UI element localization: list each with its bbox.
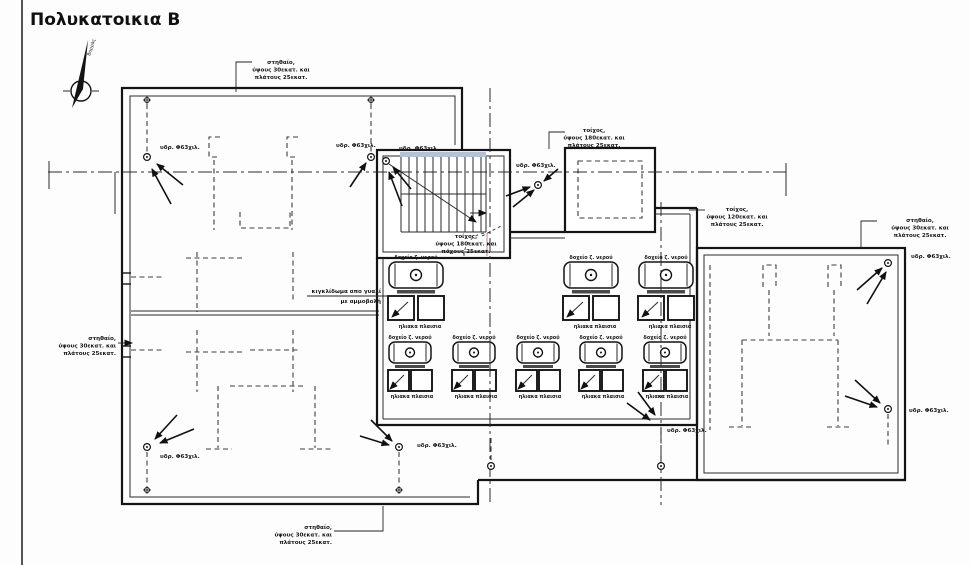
hidden-wall-dashes: [131, 137, 333, 449]
solar-unit: [643, 334, 689, 400]
drain-labels: υδρ. Φ63χιλ. υδρ. Φ63χιλ. υδρ. Φ63χιλ. υ…: [160, 143, 951, 460]
svg-text:πλάτους 25εκατ.: πλάτους 25εκατ.: [279, 539, 332, 546]
svg-text:υδρ. Φ63χιλ.: υδρ. Φ63χιλ.: [911, 254, 951, 260]
solar-unit: [563, 254, 619, 330]
svg-text:υδρ. Φ63χιλ.: υδρ. Φ63χιλ.: [336, 143, 376, 149]
svg-text:πλάτους 25εκατ.: πλάτους 25εκατ.: [894, 232, 947, 239]
svg-text:υδρ. Φ63χιλ.: υδρ. Φ63χιλ.: [160, 454, 200, 460]
svg-text:υδρ. Φ63χιλ.: υδρ. Φ63χιλ.: [667, 428, 707, 434]
svg-text:τοίχος,: τοίχος,: [583, 127, 605, 134]
solar-unit: [388, 254, 444, 330]
svg-text:ύψους 180εκατ. και: ύψους 180εκατ. και: [435, 241, 496, 248]
right-block-outer-parapet: [697, 248, 905, 480]
svg-text:πάχους 25εκατ.: πάχους 25εκατ.: [441, 248, 490, 255]
svg-text:ύψους 30εκατ. και: ύψους 30εκατ. και: [891, 225, 948, 232]
solar-units-row-2: [388, 334, 689, 400]
svg-text:στηθαίο,: στηθαίο,: [267, 59, 295, 66]
drain-pipe-dashes: [147, 104, 399, 486]
wall-180-label: τοίχος, ύψους 180εκατ. και πλάτους 25εκα…: [549, 127, 625, 149]
stair-accent-strip: [400, 152, 486, 157]
drawing-sheet: δοχείο ζ. νερού ηλιακα πλαισια δοχείο ζ.…: [0, 0, 970, 565]
svg-text:υδρ. Φ63χιλ.: υδρ. Φ63χιλ.: [516, 163, 556, 169]
parapet-label-right: στηθαίο, ύψους 30εκατ. και πλάτους 25εκα…: [861, 217, 949, 249]
glass-railing-label: κιγκλίδωμα απο γυαλί με αμμοβολή: [307, 288, 400, 305]
svg-text:με αμμοβολή: με αμμοβολή: [341, 298, 381, 305]
wall-120-label: τοίχος, ύψους 120εκατ. και πλάτους 25εκα…: [689, 206, 768, 228]
svg-text:ύψους 30εκατ. και: ύψους 30εκατ. και: [252, 67, 309, 74]
svg-text:ύψους 30εκατ. και: ύψους 30εκατ. και: [275, 532, 332, 539]
solar-units-row-1: [388, 254, 694, 330]
solar-unit: [516, 334, 562, 400]
svg-text:ύψους 180εκατ. και: ύψους 180εκατ. και: [563, 135, 624, 142]
right-block-inner-parapet: [704, 255, 898, 473]
svg-text:υδρ. Φ63χιλ.: υδρ. Φ63χιλ.: [417, 443, 457, 449]
right-roof-block: [697, 248, 905, 480]
svg-text:πλάτους 25εκατ.: πλάτους 25εκατ.: [568, 142, 621, 149]
solar-unit: [579, 334, 625, 400]
svg-text:στηθαίο,: στηθαίο,: [304, 524, 332, 531]
svg-text:ύψους 30εκατ. και: ύψους 30εκατ. και: [59, 343, 116, 350]
parapet-label-bottom: στηθαίο, ύψους 30εκατ. και πλάτους 25εκα…: [275, 506, 383, 546]
svg-text:πλάτους 25εκατ.: πλάτους 25εκατ.: [255, 74, 308, 81]
solar-unit: [638, 254, 694, 330]
svg-text:τοίχος,: τοίχος,: [455, 233, 477, 240]
svg-text:πλάτους 25εκατ.: πλάτους 25εκατ.: [63, 350, 116, 357]
svg-text:κιγκλίδωμα απο γυαλί: κιγκλίδωμα απο γυαλί: [312, 288, 381, 295]
slope-arrows: [152, 163, 886, 445]
page-title: Πολυκατοικια Β: [30, 10, 180, 30]
north-compass: Βορράς: [63, 38, 99, 108]
solar-unit: [388, 334, 434, 400]
svg-text:υδρ. Φ63χιλ.: υδρ. Φ63χιλ.: [399, 146, 439, 152]
hidden-wall-dashes: [710, 265, 851, 430]
svg-text:υδρ. Φ63χιλ.: υδρ. Φ63χιλ.: [909, 408, 949, 414]
svg-text:ύψους 120εκατ. και: ύψους 120εκατ. και: [706, 214, 767, 221]
floor-plan-drawing: δοχείο ζ. νερού ηλιακα πλαισια δοχείο ζ.…: [0, 0, 970, 565]
svg-text:υδρ. Φ63χιλ.: υδρ. Φ63χιλ.: [160, 145, 200, 151]
svg-text:στηθαίο,: στηθαίο,: [88, 335, 116, 342]
machine-room: [565, 148, 655, 232]
svg-text:τοίχος,: τοίχος,: [726, 206, 748, 213]
svg-text:στηθαίο,: στηθαίο,: [906, 217, 934, 224]
solar-unit: [452, 334, 498, 400]
svg-text:πλάτους 25εκατ.: πλάτους 25εκατ.: [711, 221, 764, 228]
